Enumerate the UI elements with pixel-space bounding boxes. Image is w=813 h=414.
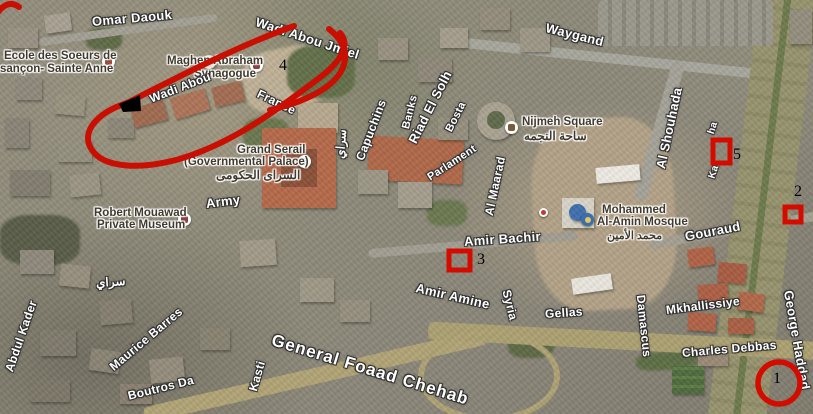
street-serail-arabic-vertical: سراي	[333, 129, 350, 160]
garden-square	[672, 366, 704, 394]
poi-serail-line1: Grand Serail	[237, 144, 305, 156]
poi-museum-line1: Robert Mouawad	[94, 207, 187, 219]
building-block	[54, 94, 86, 117]
nijmeh-square-icon	[505, 121, 518, 134]
building-block	[16, 78, 42, 100]
poi-serail-line2: (Governmental Palace)	[184, 156, 309, 168]
street-waygand: Waygand	[544, 20, 605, 49]
poi-synagogue-line1: Maghen Abraham	[167, 55, 263, 67]
marker-number-4: 4	[279, 57, 287, 75]
building-block	[59, 263, 91, 288]
building-block-orange	[728, 318, 754, 334]
building-block-orange	[130, 100, 168, 128]
building-block-orange	[717, 262, 747, 284]
poi-school-line2: sançon- Sainte Anne	[0, 63, 113, 75]
marker-number-2: 2	[794, 183, 802, 201]
marker-square-3	[449, 251, 470, 270]
marker-number-3: 3	[477, 251, 485, 269]
street-army: Army	[205, 192, 241, 211]
parking-lot-rows	[598, 0, 773, 46]
satellite-map-canvas[interactable]: Ecole des Soeurs de sançon- Sainte Anne …	[0, 0, 813, 414]
poi-mosque-line1: Mohammed	[602, 204, 666, 216]
building-block	[239, 239, 277, 267]
street-syria: Syria	[499, 288, 520, 321]
marker-number-1: 1	[773, 370, 781, 388]
poi-dot-icon	[539, 208, 548, 217]
green-patch	[427, 200, 467, 226]
building-block	[30, 380, 70, 402]
mosque-icon	[581, 213, 594, 226]
building-block	[40, 330, 76, 356]
building-block	[440, 28, 468, 48]
building-block-orange	[211, 81, 245, 108]
building-block	[20, 250, 54, 274]
building-block	[480, 8, 510, 30]
building-block	[44, 12, 72, 33]
building-block	[8, 28, 38, 48]
street-fragment-above-marker5: ha	[706, 120, 720, 135]
poi-museum-line2: Private Museum	[97, 219, 185, 231]
marker-square-5	[713, 140, 730, 163]
building-block	[398, 182, 432, 208]
street-amir-bachir: Amir Bachir	[463, 229, 541, 249]
building-block	[790, 10, 812, 44]
building-block	[358, 170, 388, 194]
poi-nijmeh-arabic: ساحة النجمه	[524, 129, 587, 143]
street-al-maarad: Al Maarad	[482, 155, 508, 217]
poi-school-line1: Ecole des Soeurs de	[4, 50, 117, 62]
street-gellas: Gellas	[545, 304, 584, 321]
building-block-orange	[687, 246, 715, 267]
street-abdul-kader: Abdul Kader	[2, 298, 40, 373]
annotation-corner-fragment	[0, 4, 19, 15]
street-fragment-below-marker5: Ka	[707, 164, 722, 180]
building-block	[5, 118, 29, 148]
building-block	[300, 278, 334, 302]
poi-serail-arabic: السراى الحكومى	[216, 168, 300, 182]
poi-nijmeh-line1: Nijmeh Square	[522, 116, 603, 128]
street-amir-amine: Amir Amine	[414, 280, 491, 312]
building-block	[99, 299, 133, 326]
nijmeh-roundabout-green	[487, 111, 505, 129]
building-block	[378, 38, 408, 60]
building-block	[340, 300, 370, 322]
building-block	[108, 118, 134, 138]
building-block	[69, 172, 101, 197]
building-block	[58, 140, 92, 162]
building-block-orange	[687, 312, 716, 332]
building-block	[10, 170, 50, 196]
poi-mosque-arabic: محمد الأمين	[607, 229, 662, 242]
street-serail-arabic-horizontal: سراي	[96, 274, 126, 290]
poi-mosque-line2: Al-Amin Mosque	[597, 216, 688, 228]
marker-number-5: 5	[733, 146, 741, 164]
building-block	[200, 328, 230, 350]
building-block-orange	[737, 291, 765, 312]
